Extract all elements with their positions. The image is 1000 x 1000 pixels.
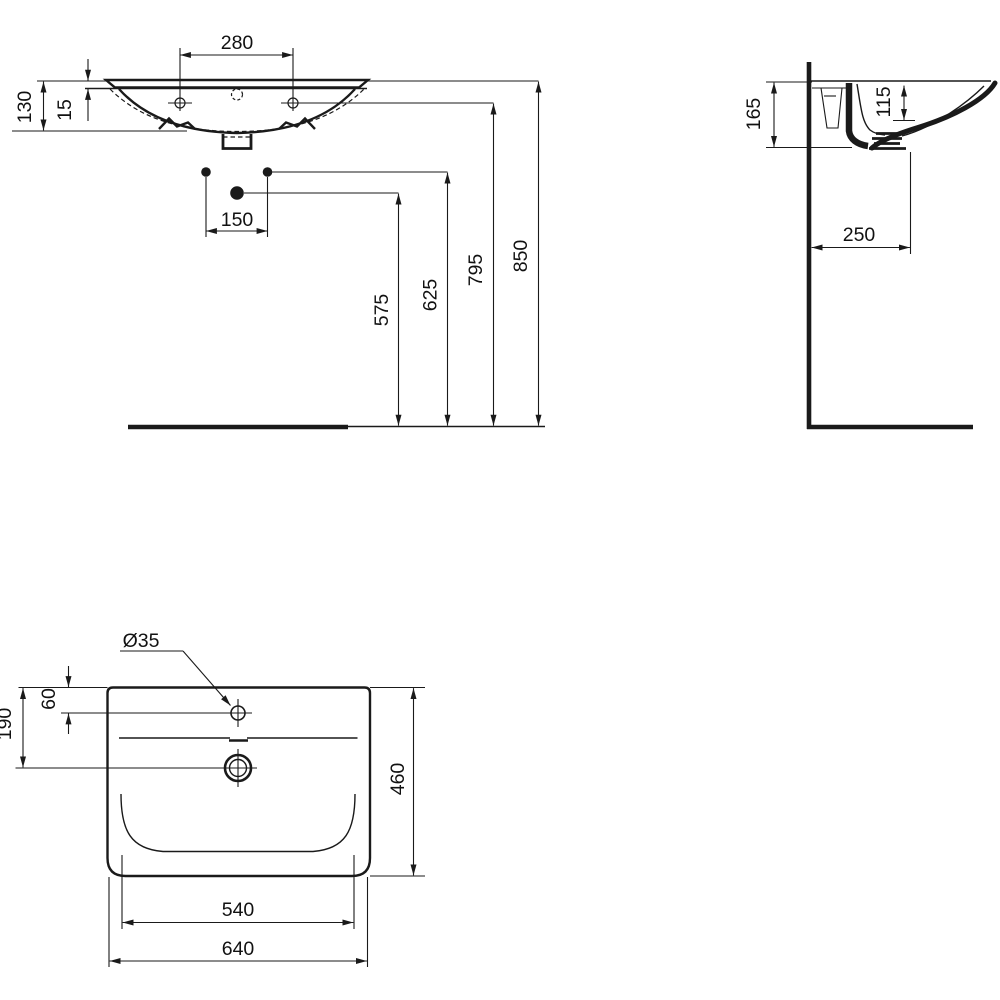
drain-trap-box bbox=[223, 134, 251, 149]
dim-label-trap-outlet-height: 575 bbox=[371, 294, 393, 327]
tap-hole-leader bbox=[120, 651, 231, 706]
dim-label-tap-hole-offset: 60 bbox=[38, 688, 60, 710]
bowl-inner-edge bbox=[121, 794, 355, 852]
dim-label-basin-height: 130 bbox=[14, 91, 36, 124]
dim-label-fixing-hole-height: 795 bbox=[465, 254, 487, 287]
dim-label-rim-top-height: 850 bbox=[510, 240, 532, 273]
bowl-hidden-curve bbox=[110, 89, 364, 132]
dim-label-tap-hole-diameter: Ø35 bbox=[123, 630, 160, 652]
wall-bracket-section bbox=[821, 88, 842, 128]
supply-point-left bbox=[201, 167, 211, 177]
plan-view: Ø35 60 190 460 540 640 bbox=[0, 630, 425, 967]
dim-label-outlet-spacing: 150 bbox=[221, 209, 254, 231]
dim-label-outlet-offset: 190 bbox=[0, 708, 16, 741]
dim-label-bowl-inner-depth: 115 bbox=[873, 86, 895, 117]
dim-label-rim-thickness: 15 bbox=[54, 99, 76, 121]
dim-label-tap-spacing: 280 bbox=[221, 32, 254, 54]
overflow-hole bbox=[232, 89, 243, 100]
washbasin-technical-drawing: 280 130 15 150 575 625 795 850 bbox=[0, 0, 1000, 1000]
basin-rim-outline bbox=[106, 80, 368, 88]
front-view: 280 130 15 150 575 625 795 850 bbox=[12, 32, 545, 427]
drain-hole bbox=[219, 749, 257, 787]
bowl-outer-curve bbox=[119, 89, 355, 133]
dim-label-overall-depth: 460 bbox=[387, 763, 409, 796]
dim-label-basin-total-depth: 165 bbox=[743, 98, 765, 131]
side-view: 165 115 250 bbox=[743, 62, 995, 429]
dim-label-bowl-inner-width: 540 bbox=[222, 899, 255, 921]
dim-label-overall-width: 640 bbox=[222, 938, 255, 960]
dim-label-supply-height: 625 bbox=[420, 279, 442, 312]
waste-outlet-point bbox=[230, 186, 244, 200]
supply-point-right bbox=[263, 167, 273, 177]
dim-label-outlet-wall-distance: 250 bbox=[843, 224, 876, 246]
